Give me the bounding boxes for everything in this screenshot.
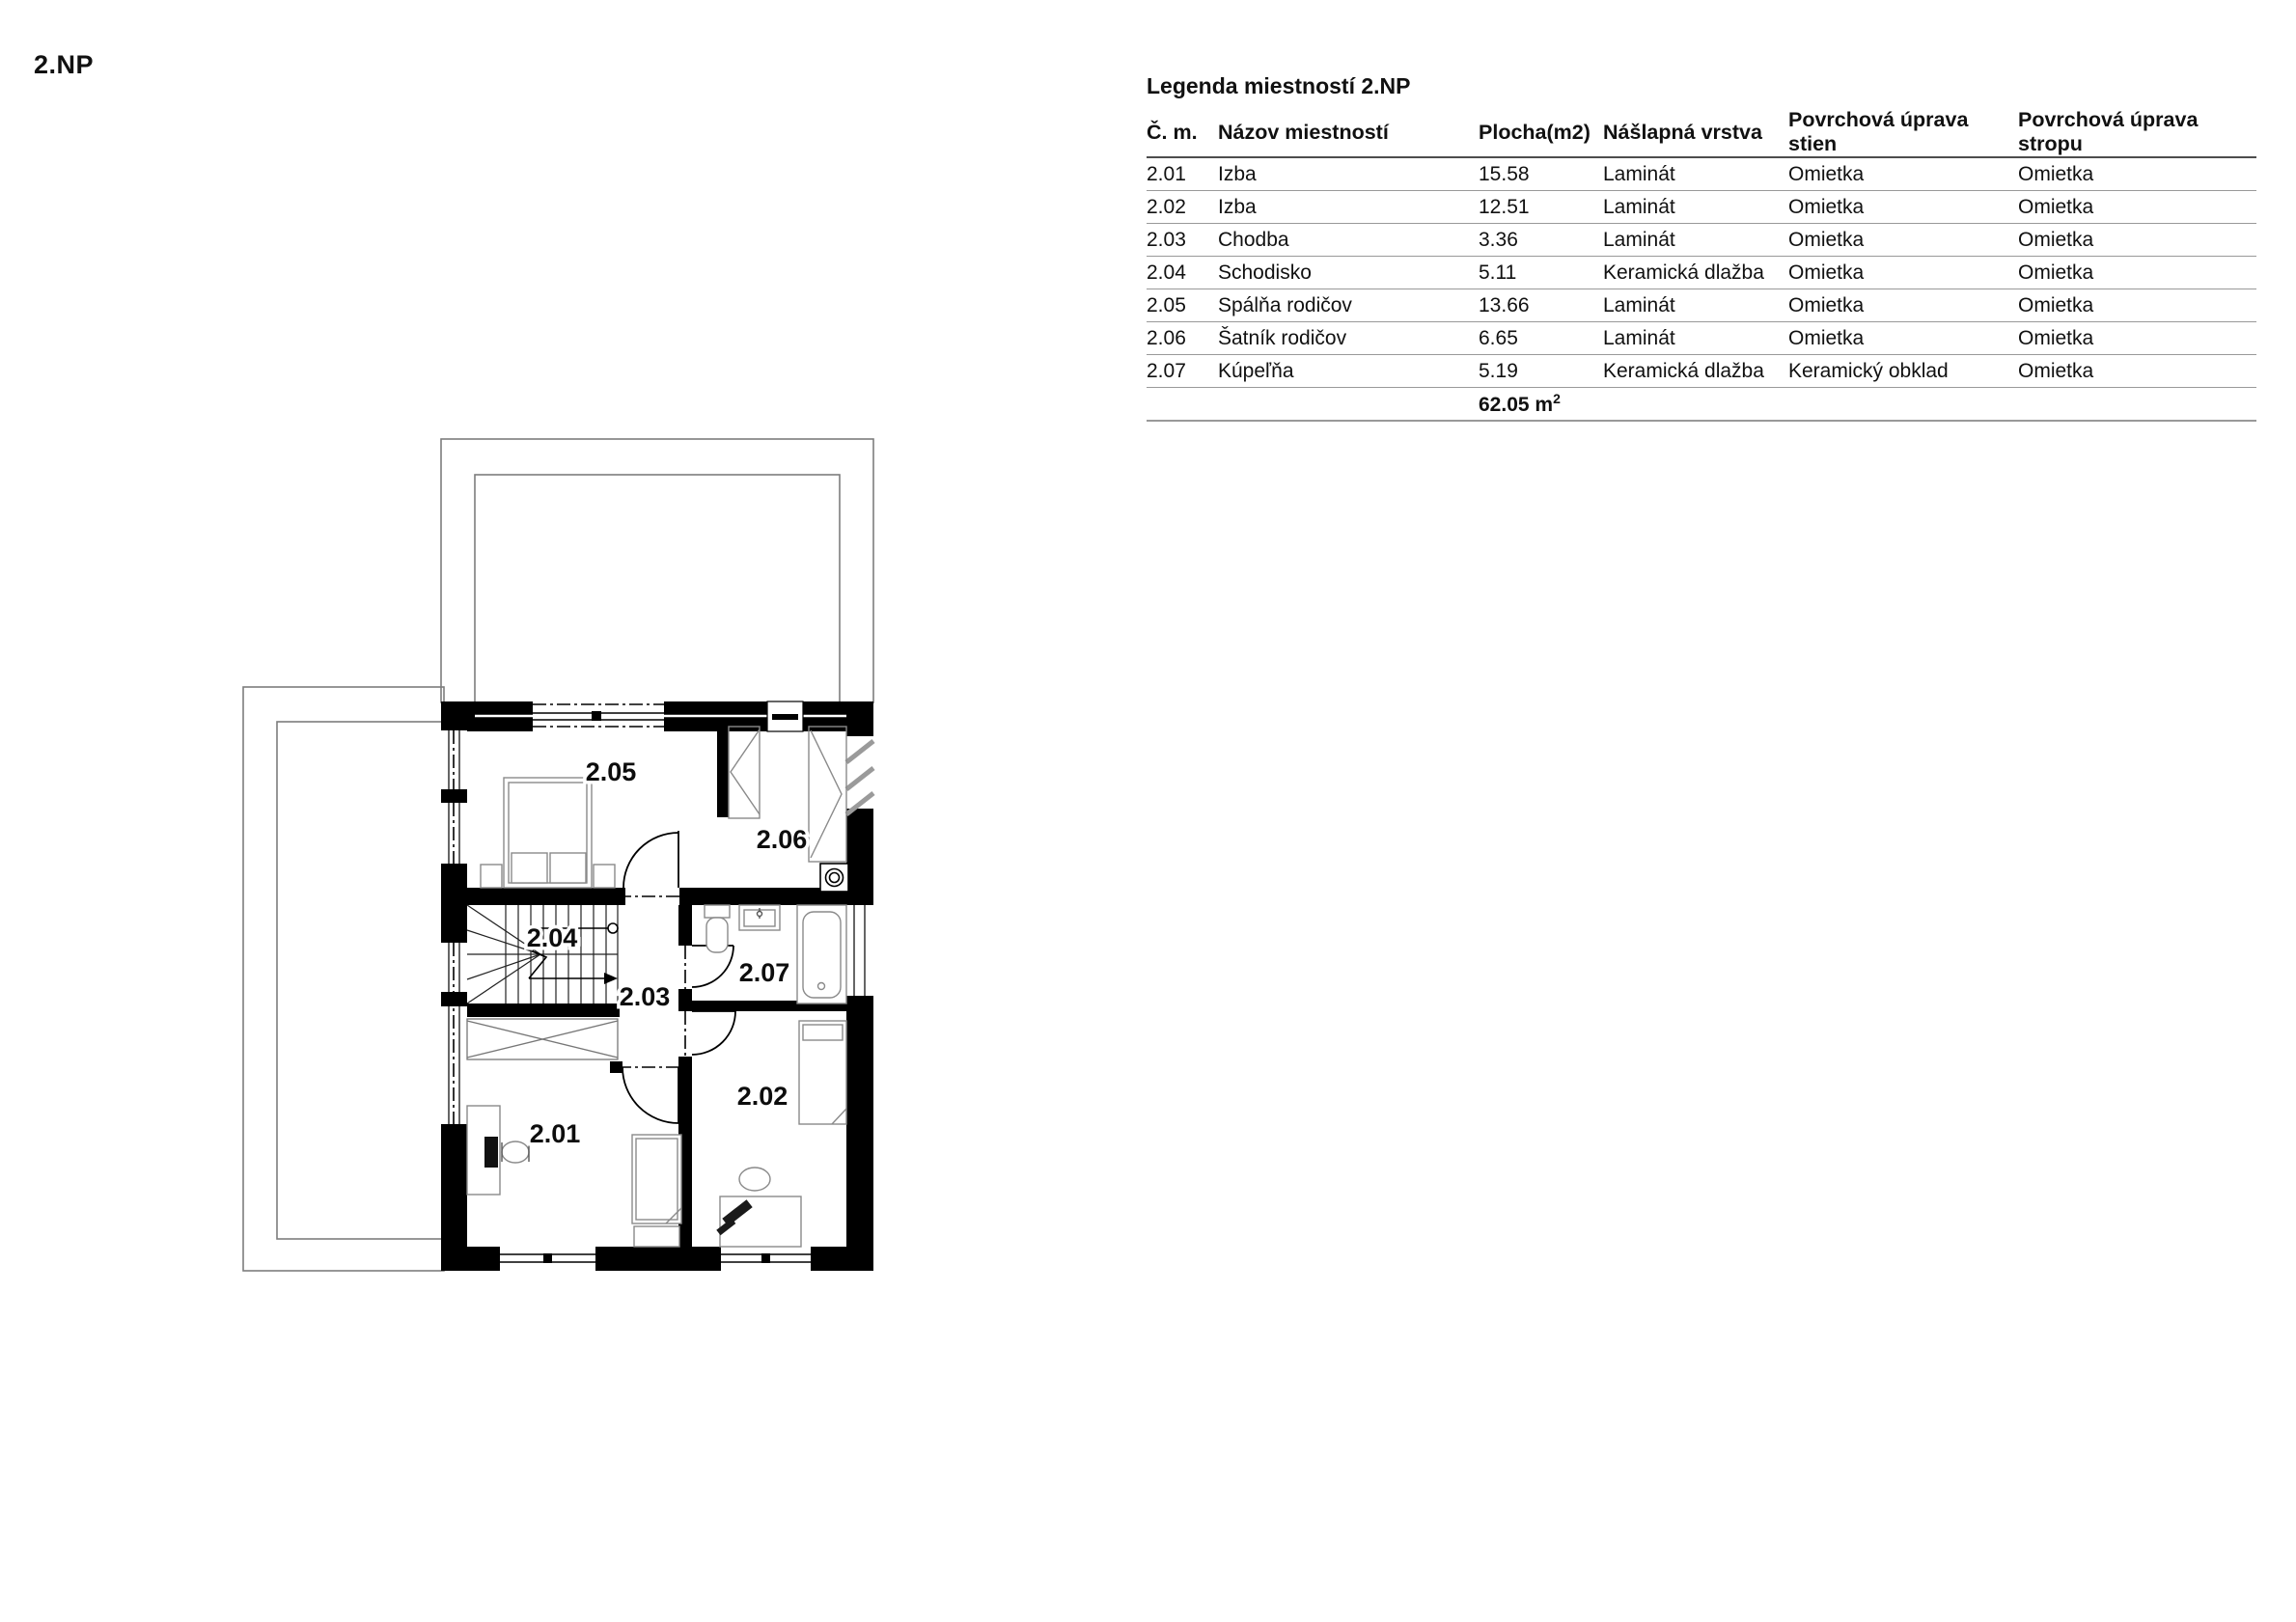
room-label-2.03: 2.03 xyxy=(620,982,671,1011)
room-label-2.04: 2.04 xyxy=(527,923,578,952)
bed-single xyxy=(632,1135,681,1247)
room-label-2.06: 2.06 xyxy=(757,825,808,854)
bathtub-icon xyxy=(797,905,846,1003)
built-in-closet xyxy=(467,1019,618,1059)
staircase xyxy=(467,905,618,1003)
room-label-2.07: 2.07 xyxy=(739,958,790,987)
bed-single xyxy=(799,1021,846,1124)
sink-icon xyxy=(739,905,780,930)
floorplan-drawing: 2.01 2.02 2.03 2.04 2.05 2.06 2.07 xyxy=(0,0,2296,1622)
desk-with-computer xyxy=(467,1106,529,1195)
room-label-2.02: 2.02 xyxy=(737,1082,788,1111)
bed-double xyxy=(481,778,615,888)
toilet-icon xyxy=(705,905,730,952)
washing-machine-icon xyxy=(820,864,848,892)
dashdot-lines xyxy=(454,704,687,1124)
room-label-2.05: 2.05 xyxy=(586,757,637,786)
room-label-2.01: 2.01 xyxy=(530,1119,581,1148)
desk-with-chair xyxy=(716,1168,801,1247)
doors xyxy=(622,831,735,1123)
